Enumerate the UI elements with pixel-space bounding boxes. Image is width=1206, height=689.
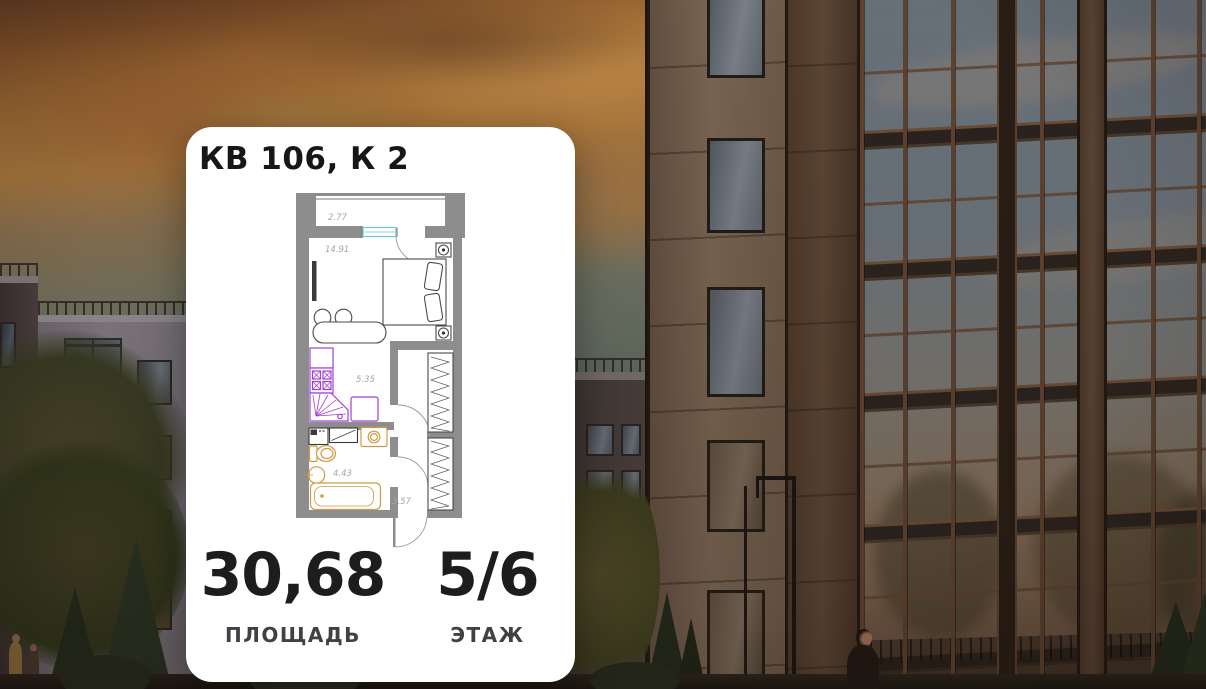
stove xyxy=(310,368,333,393)
beige-side-wall xyxy=(650,0,785,689)
kitchen-counter xyxy=(310,348,333,368)
mullion xyxy=(1197,0,1201,689)
window xyxy=(621,424,641,456)
mullion xyxy=(1040,0,1044,689)
entrance-door-leaf xyxy=(393,518,396,547)
bed xyxy=(383,259,446,325)
floor-plan: 2.77 14.91 5.35 4.43 3.57 xyxy=(293,188,469,548)
area-value: 30,68 xyxy=(201,545,386,605)
apartment-title: КВ 106, К 2 xyxy=(199,141,409,177)
washing-machine xyxy=(309,428,328,445)
mullion xyxy=(1151,0,1155,689)
corner-sink-unit xyxy=(310,393,348,421)
glass-curtain-wall xyxy=(860,0,1206,689)
mullion xyxy=(951,0,955,689)
floor-label: ЭТАЖ xyxy=(450,623,524,647)
apartment-listing-screen: КВ 106, К 2 xyxy=(0,0,1206,689)
window xyxy=(707,287,765,397)
bar-counter xyxy=(313,322,386,343)
kitchen-table xyxy=(351,397,378,421)
window xyxy=(707,138,765,233)
balcony-window xyxy=(362,228,398,237)
lamp-post-hook xyxy=(756,476,759,498)
area-label: ПЛОЩАДЬ xyxy=(225,623,361,647)
lamp-post-arm xyxy=(756,476,796,480)
right-building xyxy=(645,0,1206,689)
lamp-post xyxy=(792,476,796,689)
sign-post xyxy=(744,486,747,689)
panel-seams xyxy=(785,0,860,689)
brown-panel-column xyxy=(785,0,860,689)
mullion xyxy=(860,0,864,689)
bathroom-area-label: 4.43 xyxy=(333,469,352,479)
toilet xyxy=(310,446,336,462)
stat-floor: 5/6 ЭТАЖ xyxy=(400,545,575,647)
person xyxy=(9,642,22,674)
hallway-area-label: 3.57 xyxy=(392,497,412,507)
living-room-area-label: 14.91 xyxy=(325,245,349,255)
mullion xyxy=(903,0,907,689)
wardrobe xyxy=(428,438,453,510)
bathroom-counter xyxy=(330,428,358,443)
floor-value: 5/6 xyxy=(436,545,538,605)
bathtub xyxy=(311,483,381,510)
window xyxy=(707,0,765,78)
tv xyxy=(312,261,317,301)
structural-frame xyxy=(997,0,1017,689)
wardrobe xyxy=(428,353,453,432)
dryer xyxy=(361,428,387,447)
balcony-area-label: 2.77 xyxy=(328,213,348,223)
person xyxy=(847,645,879,689)
apartment-stats: 30,68 ПЛОЩАДЬ 5/6 ЭТАЖ xyxy=(186,545,575,647)
kitchen-area-label: 5.35 xyxy=(356,375,375,385)
window xyxy=(707,590,765,678)
stat-area: 30,68 ПЛОЩАДЬ xyxy=(186,545,400,647)
brown-panel-column xyxy=(1077,0,1107,689)
apartment-card[interactable]: КВ 106, К 2 xyxy=(186,127,575,682)
